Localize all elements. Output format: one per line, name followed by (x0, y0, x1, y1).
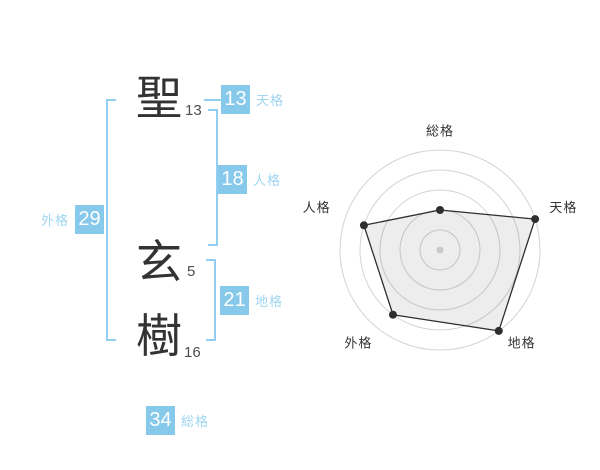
radar-vertex-dot (436, 206, 444, 214)
radar-axis-label: 天格 (549, 200, 577, 215)
radar-vertex-dot (495, 327, 503, 335)
radar-center-dot (437, 247, 444, 254)
radar-vertex-dot (360, 221, 368, 229)
fortune-radar-chart: 総格天格地格外格人格 (0, 0, 600, 470)
radar-axis-label: 外格 (344, 336, 372, 351)
name-fortune-panel: 聖 13 玄 5 樹 16 13 天格 18 人格 21 地格 外格 29 34… (0, 0, 600, 470)
radar-vertex-dot (389, 311, 397, 319)
radar-axis-label: 総格 (426, 124, 454, 139)
radar-axis-label: 地格 (508, 336, 536, 351)
radar-axis-label: 人格 (303, 200, 331, 215)
radar-vertex-dot (531, 215, 539, 223)
